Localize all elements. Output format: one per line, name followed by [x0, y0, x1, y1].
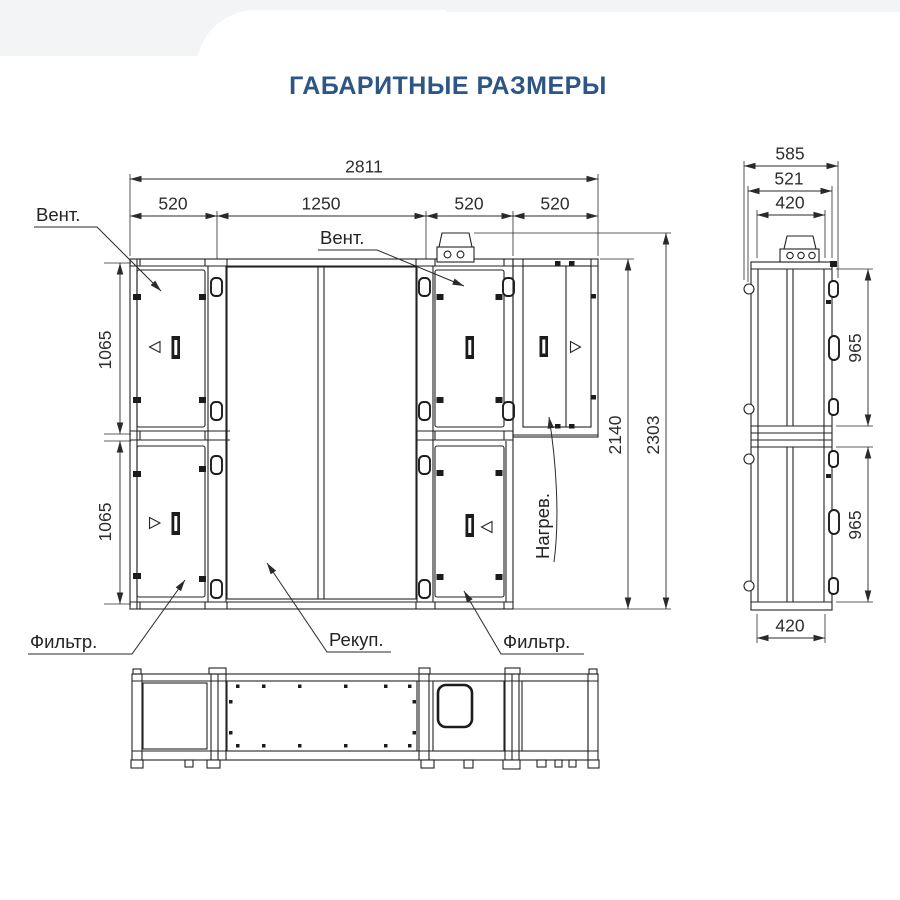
svg-text:Рекуп.: Рекуп. [329, 629, 384, 650]
page: ГАБАРИТНЫЕ РАЗМЕРЫ [0, 0, 900, 900]
dim-side-body-depth-bottom: 420 [775, 616, 804, 636]
latch-pin [496, 574, 503, 580]
latch-capsule [419, 278, 430, 296]
bottom-panel-right [522, 681, 588, 751]
dim-front-module-top-height: 1065 [95, 331, 115, 370]
filter-door-bottom-left [133, 446, 222, 598]
cable-gland-icon [444, 251, 451, 258]
latch-pin [199, 466, 206, 472]
latch-capsule [211, 580, 222, 598]
latch-capsule [211, 402, 222, 420]
foot [555, 760, 562, 767]
latch-capsule [211, 278, 222, 296]
latch-pin [437, 397, 444, 403]
svg-text:Нагрев.: Нагрев. [532, 493, 553, 559]
foot [503, 760, 520, 769]
foot [207, 760, 220, 768]
bottom-panel-middle [227, 681, 417, 751]
latch-capsule [419, 456, 430, 474]
recuperator-panel [227, 267, 416, 599]
foot [537, 760, 546, 767]
front-frame [130, 259, 598, 609]
label-filter-left: Фильтр. [28, 580, 185, 654]
panel-screws [229, 685, 416, 748]
foot [185, 760, 193, 767]
open-direction-triangle [482, 522, 493, 533]
latch-capsule [503, 402, 514, 420]
door-handle-side [829, 510, 839, 534]
filter-door-bottom-right [419, 446, 504, 598]
latch-pin [437, 294, 444, 300]
front-dimensions: 2811 520 1250 520 520 1065 1065 2140 230… [95, 157, 671, 610]
unit-feet [131, 760, 599, 769]
latch-pin [437, 470, 444, 476]
cable-gland-icon [809, 252, 815, 258]
latch-pin [496, 294, 503, 300]
front-callouts: Вент. Вент. Нагрев. Фильтр. Рекуп. [28, 204, 584, 654]
dim-front-body-height: 2140 [605, 415, 625, 454]
dim-front-section-fan-left: 520 [158, 194, 187, 214]
latch-pin [496, 397, 503, 403]
side-hinges [744, 284, 754, 591]
foot [131, 760, 143, 768]
side-frame [751, 262, 832, 610]
dim-front-overall-width: 2811 [345, 157, 383, 177]
dim-side-door-bottom-height: 965 [845, 510, 865, 539]
dim-side-body-depth-top: 420 [775, 193, 804, 213]
foot [569, 760, 576, 767]
door-handle-side [829, 336, 839, 360]
latch-pin [199, 576, 206, 582]
latch-capsule [211, 456, 222, 474]
dim-side-door-top-height: 965 [845, 333, 865, 362]
cable-gland-icon [787, 252, 793, 258]
bottom-view [131, 668, 599, 769]
duct-opening [438, 685, 472, 727]
latch-capsule [419, 580, 430, 598]
latch-capsule [503, 278, 514, 296]
latch-pin [437, 574, 444, 580]
cable-gland-icon [798, 252, 804, 258]
side-dimensions: 585 521 420 965 965 420 [744, 144, 873, 644]
open-direction-triangle [150, 518, 161, 529]
open-direction-triangle [571, 342, 581, 353]
label-fan-left: Вент. [34, 204, 161, 291]
dim-front-section-recuperator: 1250 [302, 194, 341, 214]
label-filter-right: Фильтр. [464, 591, 584, 654]
door-hinge [133, 294, 141, 300]
bottom-panel-duct [433, 681, 504, 751]
page-title: ГАБАРИТНЫЕ РАЗМЕРЫ [289, 72, 607, 100]
latch-pin [199, 397, 206, 403]
label-heater: Нагрев. [532, 417, 557, 562]
svg-text:Фильтр.: Фильтр. [503, 631, 570, 652]
dimensional-drawing-canvas: ГАБАРИТНЫЕ РАЗМЕРЫ [0, 0, 900, 900]
dim-front-module-bottom-height: 1065 [95, 503, 115, 542]
connection-box-side [780, 236, 819, 262]
door-hinge [133, 397, 141, 403]
side-view: 585 521 420 965 965 420 [744, 144, 873, 644]
fan-door-top-left [133, 270, 222, 427]
cable-gland-icon [457, 251, 464, 258]
bottom-panel-left [143, 683, 207, 749]
heater-box [513, 259, 598, 437]
connection-box-front [437, 233, 474, 262]
latch-pin [496, 470, 503, 476]
door-hinge [133, 573, 141, 579]
foot [464, 760, 473, 768]
latch-pin [199, 294, 206, 300]
bottom-frame [132, 668, 598, 760]
latch-capsule [419, 402, 430, 420]
label-recuperator: Рекуп. [267, 563, 391, 652]
dim-side-door-depth: 521 [774, 169, 803, 189]
foot [421, 760, 434, 768]
dim-front-total-height: 2303 [643, 416, 663, 455]
foot [588, 760, 599, 768]
dim-side-overall-depth: 585 [775, 144, 804, 164]
dim-front-section-fan-right: 520 [454, 194, 483, 214]
dim-front-section-heater: 520 [540, 194, 569, 214]
front-view: 2811 520 1250 520 520 1065 1065 2140 230… [28, 157, 671, 655]
svg-text:Фильтр.: Фильтр. [30, 631, 97, 652]
open-direction-triangle [150, 342, 161, 353]
svg-text:Вент.: Вент. [36, 204, 80, 225]
door-hinge [133, 471, 141, 477]
svg-text:Вент.: Вент. [320, 227, 364, 248]
